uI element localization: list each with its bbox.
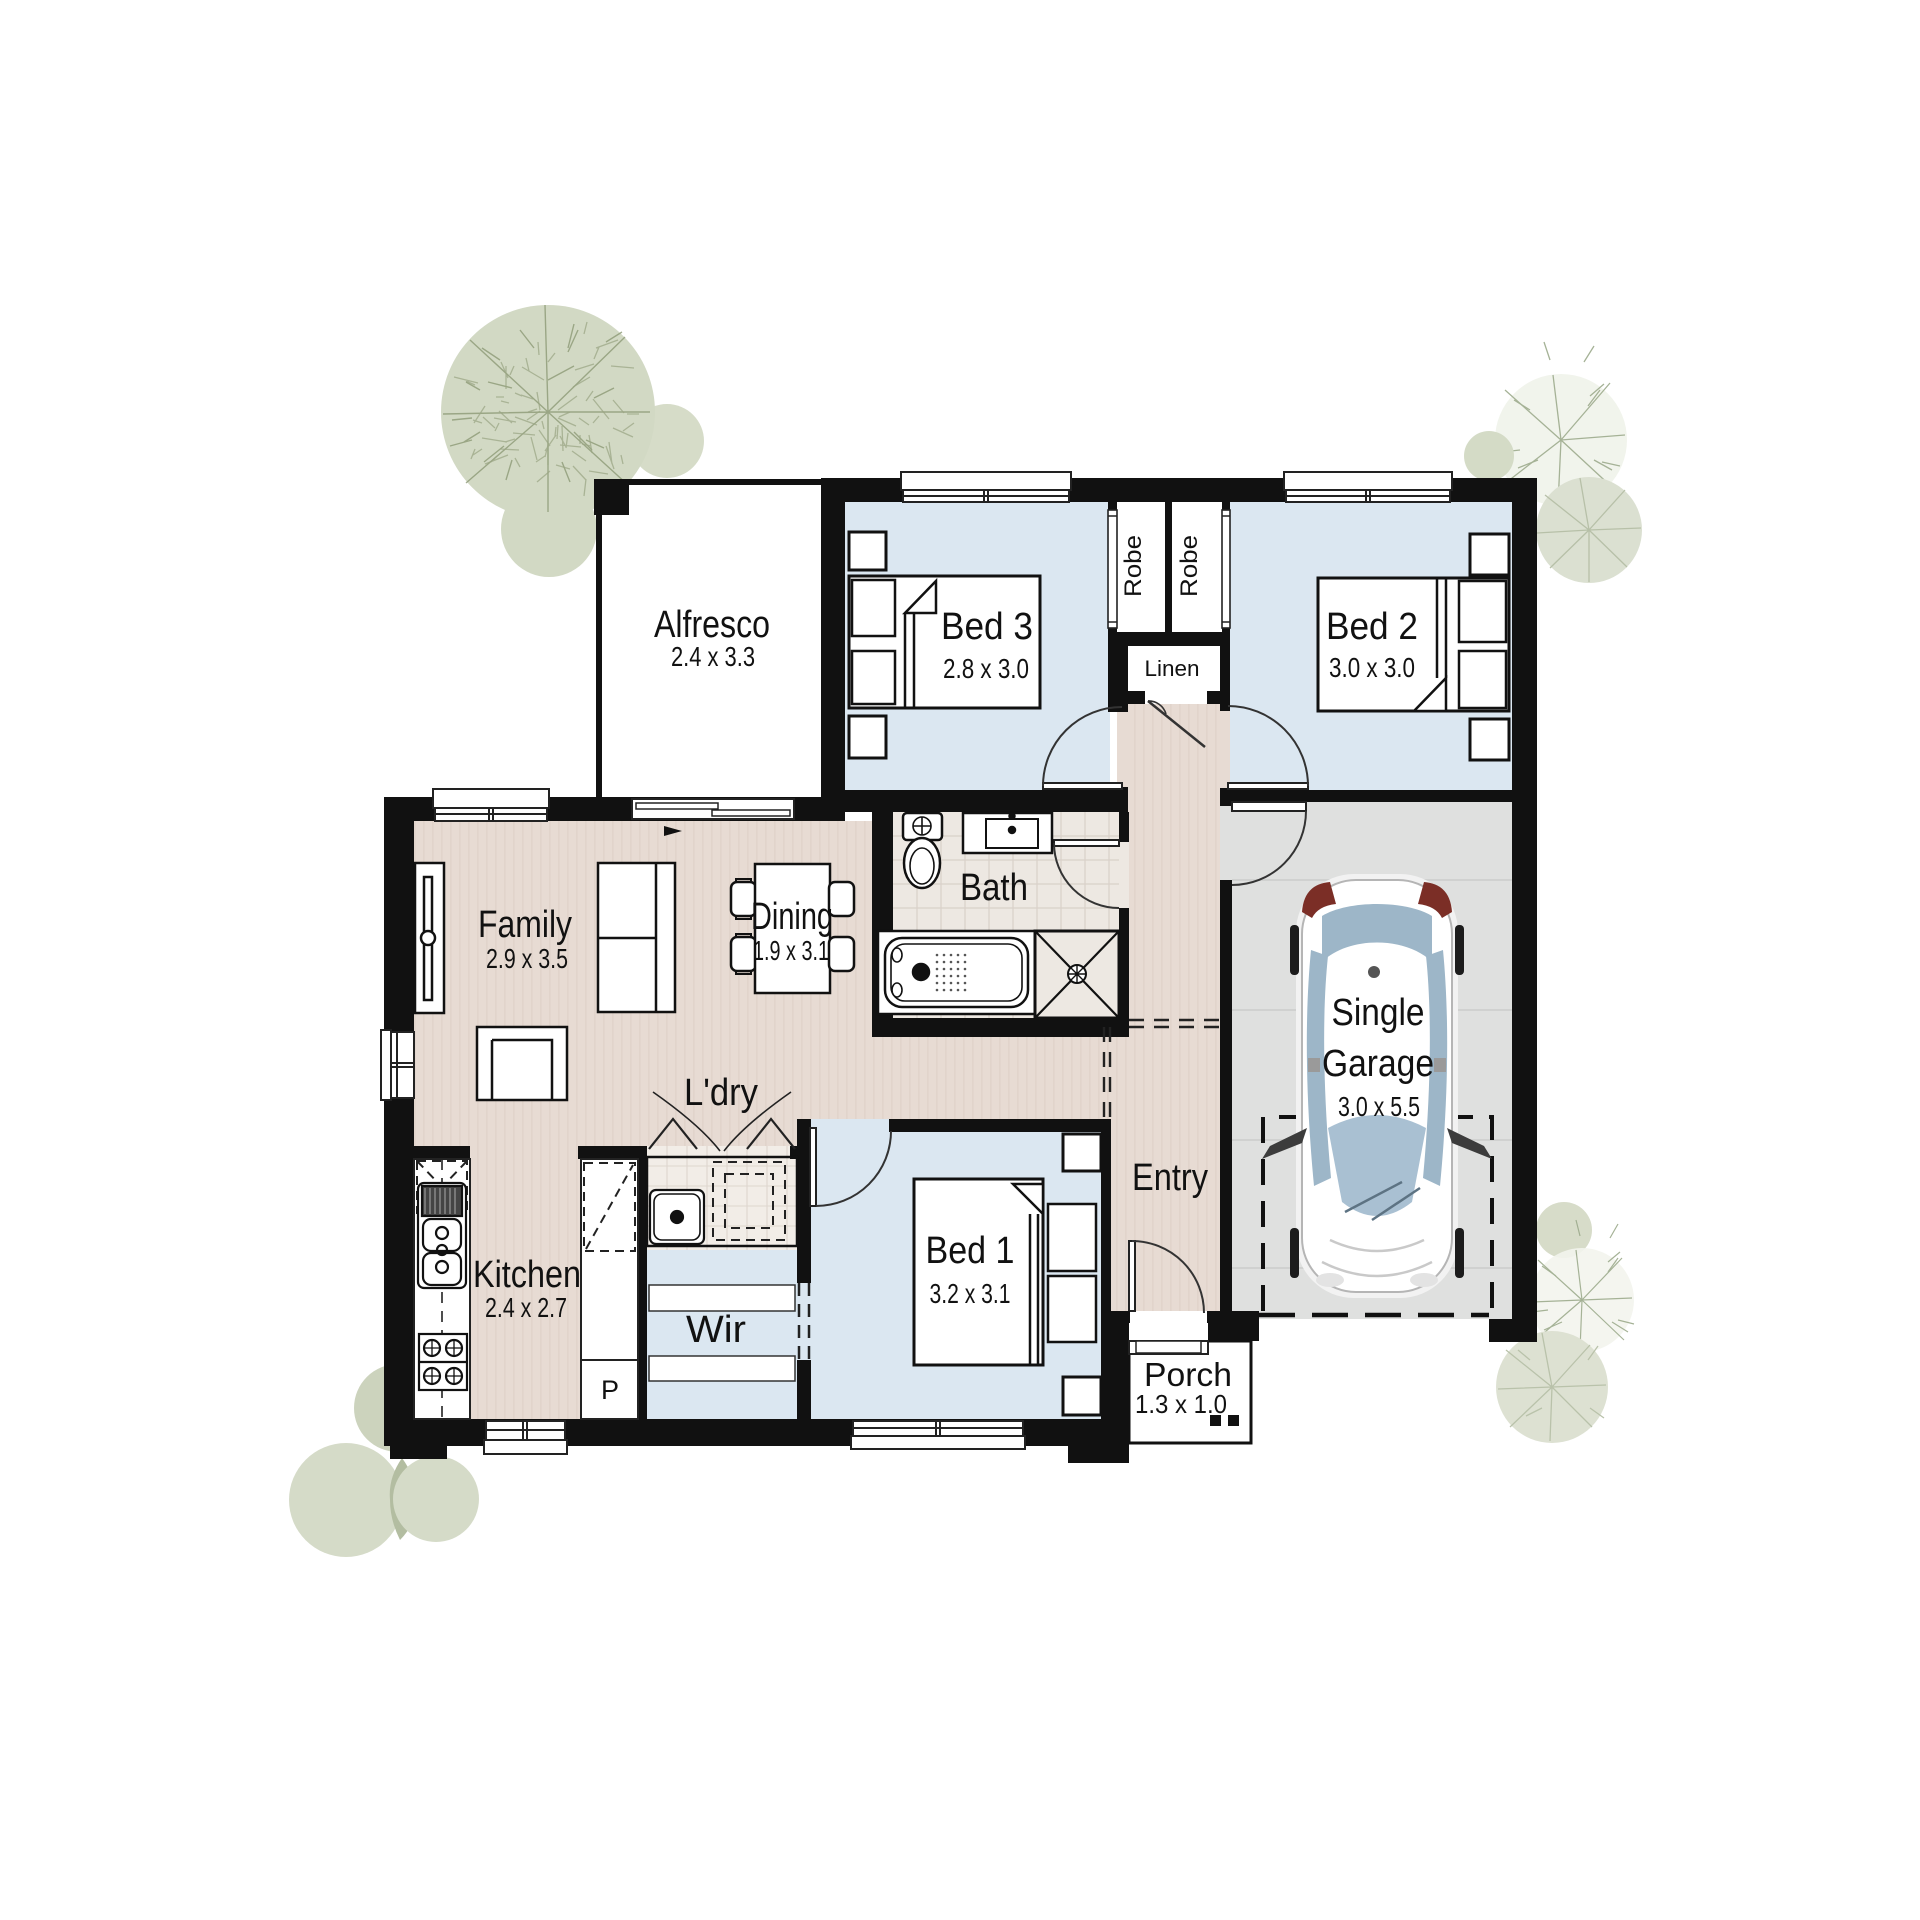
svg-text:3.0 x 3.0: 3.0 x 3.0 xyxy=(1329,652,1415,683)
svg-text:P: P xyxy=(601,1375,619,1405)
svg-text:2.8 x 3.0: 2.8 x 3.0 xyxy=(943,653,1029,684)
svg-text:3.2 x 3.1: 3.2 x 3.1 xyxy=(930,1278,1011,1309)
svg-text:Kitchen: Kitchen xyxy=(473,1254,581,1296)
svg-text:1.9 x 3.1: 1.9 x 3.1 xyxy=(753,935,829,966)
svg-text:Family: Family xyxy=(478,904,572,946)
svg-text:Bed 1: Bed 1 xyxy=(926,1230,1015,1272)
svg-text:Bath: Bath xyxy=(960,867,1028,909)
svg-text:Entry: Entry xyxy=(1132,1157,1208,1199)
svg-text:Robe: Robe xyxy=(1176,535,1203,597)
svg-text:Bed 2: Bed 2 xyxy=(1326,606,1418,648)
svg-text:Wir: Wir xyxy=(686,1309,746,1351)
svg-text:Robe: Robe xyxy=(1120,535,1147,597)
svg-text:Single: Single xyxy=(1332,992,1425,1034)
svg-text:Bed 3: Bed 3 xyxy=(941,606,1033,648)
svg-text:3.0 x 5.5: 3.0 x 5.5 xyxy=(1338,1091,1420,1122)
svg-text:1.3 x 1.0: 1.3 x 1.0 xyxy=(1135,1389,1227,1419)
svg-text:2.4 x 3.3: 2.4 x 3.3 xyxy=(671,641,755,672)
svg-text:2.4 x 2.7: 2.4 x 2.7 xyxy=(485,1292,567,1323)
svg-text:Dining: Dining xyxy=(751,896,833,938)
svg-text:Alfresco: Alfresco xyxy=(654,604,770,646)
svg-text:Linen: Linen xyxy=(1145,656,1200,681)
svg-text:Porch: Porch xyxy=(1144,1356,1232,1393)
svg-text:2.9 x 3.5: 2.9 x 3.5 xyxy=(486,943,568,974)
svg-text:L'dry: L'dry xyxy=(684,1072,758,1114)
svg-text:Garage: Garage xyxy=(1322,1043,1434,1085)
